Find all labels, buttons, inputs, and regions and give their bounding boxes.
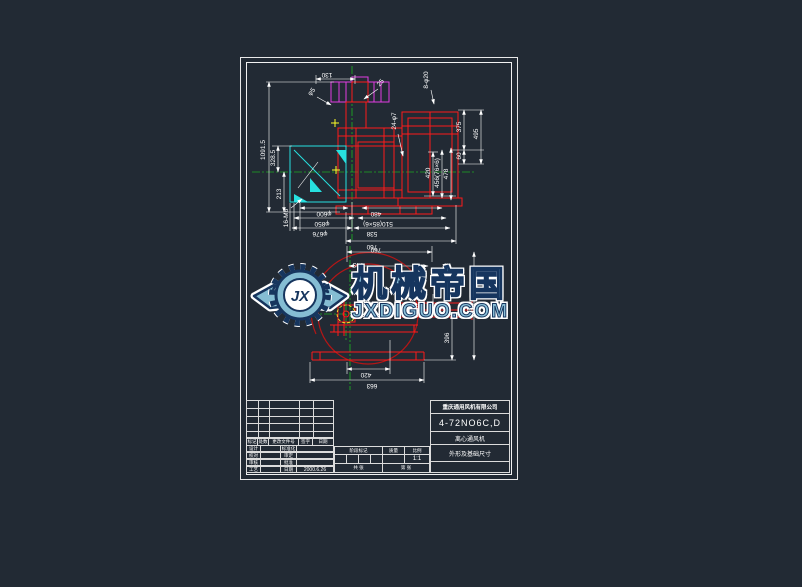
dim-label: φ676: [312, 230, 327, 237]
front-view-geometry: [296, 246, 476, 390]
dim-label: 60: [456, 152, 463, 160]
dim-label: 328.5: [270, 149, 277, 166]
tb-row-label: 工艺: [246, 466, 261, 473]
dim-label: 456(76×6): [434, 158, 441, 188]
top-view-dimensions: [266, 75, 484, 244]
tb-row-label: 审核: [246, 459, 261, 466]
dim-label: φ600: [316, 210, 331, 217]
tb-row-label: 设计: [246, 445, 261, 452]
tb-date-value: 2000.6.26: [296, 466, 334, 473]
tb-row-label2: 日期: [280, 466, 297, 473]
dim-label: 420: [425, 167, 432, 178]
revision-grid: [246, 400, 334, 438]
tb-row-label2: 批准: [280, 459, 297, 466]
dim-label: 495: [473, 128, 480, 139]
dim-label: 420: [360, 371, 371, 378]
dim-label: φ5: [307, 86, 318, 97]
tb-sheet-total: 共 张: [334, 463, 383, 473]
dim-label: 663: [366, 382, 377, 389]
dim-label: 538: [366, 230, 377, 237]
dim-label: 24-φ7: [391, 112, 398, 130]
dim-label: 213: [276, 188, 283, 199]
dim-label: φ850: [314, 220, 329, 227]
dim-label: 760: [370, 246, 381, 253]
tb-company: 重庆通用风机有限公司: [430, 400, 510, 414]
front-view-dimensions: [310, 246, 474, 383]
tb-row-label: 校对: [246, 452, 261, 459]
cad-drawing: 130 φ5 25 24-φ7 8-φ20 1091.5 328.5 213 1…: [0, 0, 802, 587]
dim-label: 16-M6: [283, 208, 290, 227]
dim-label: 396: [444, 332, 451, 343]
dim-label: 478: [443, 168, 450, 179]
dim-label: 130: [321, 71, 332, 78]
tb-doc-title: 外形及基础尺寸: [430, 444, 510, 462]
tb-row-label2: 标准化: [280, 445, 297, 452]
dim-label: 480: [370, 210, 381, 217]
dim-label: 1091.5: [260, 140, 267, 160]
tb-sheet-no: 第 张: [382, 463, 430, 473]
dim-label: 25: [376, 78, 386, 88]
dim-label: 743: [352, 261, 363, 268]
cad-viewer-canvas[interactable]: 130 φ5 25 24-φ7 8-φ20 1091.5 328.5 213 1…: [0, 0, 802, 587]
title-block: 标记 处数 更改文件号 签字 日期 设计 标准化 校对 审定 审核 批准 工艺 …: [246, 400, 510, 473]
tb-row-label2: 审定: [280, 452, 297, 459]
tb-product: 离心通风机: [430, 431, 510, 445]
top-view-dim-labels: 130 φ5 25 24-φ7 8-φ20 1091.5 328.5 213 1…: [260, 71, 480, 250]
tb-model: 4-72NO6C,D: [430, 413, 510, 432]
dim-label: 375: [456, 121, 463, 132]
dim-label: 510(85×6): [363, 220, 393, 227]
dim-label: 8-φ20: [423, 71, 430, 89]
